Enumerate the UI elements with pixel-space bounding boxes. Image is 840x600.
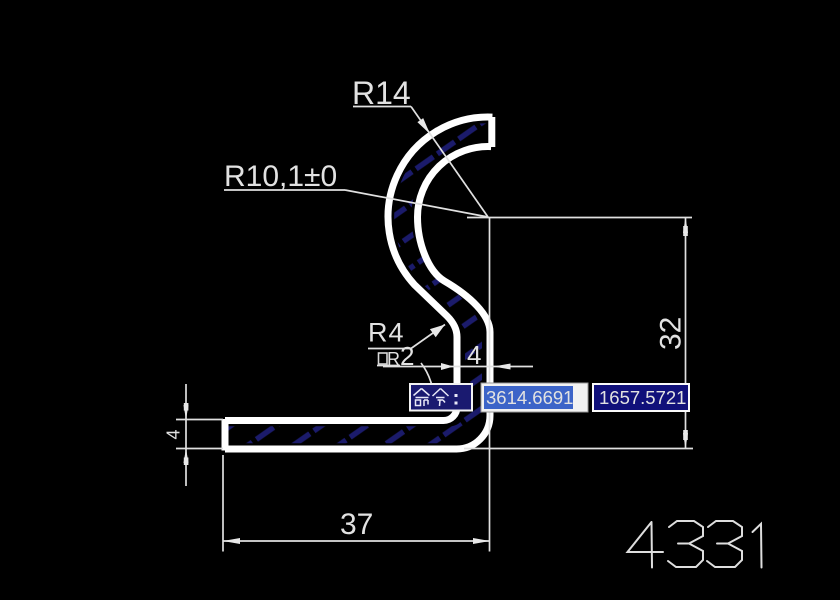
svg-text:3614.6691: 3614.6691	[486, 387, 573, 408]
svg-text:R10,1±0: R10,1±0	[224, 160, 337, 193]
svg-text:37: 37	[340, 508, 373, 541]
svg-text:32: 32	[655, 317, 688, 350]
svg-text:1657.5721: 1657.5721	[599, 387, 686, 408]
svg-text:4: 4	[164, 429, 184, 439]
svg-text:4: 4	[467, 340, 481, 370]
svg-text:R14: R14	[352, 75, 411, 111]
